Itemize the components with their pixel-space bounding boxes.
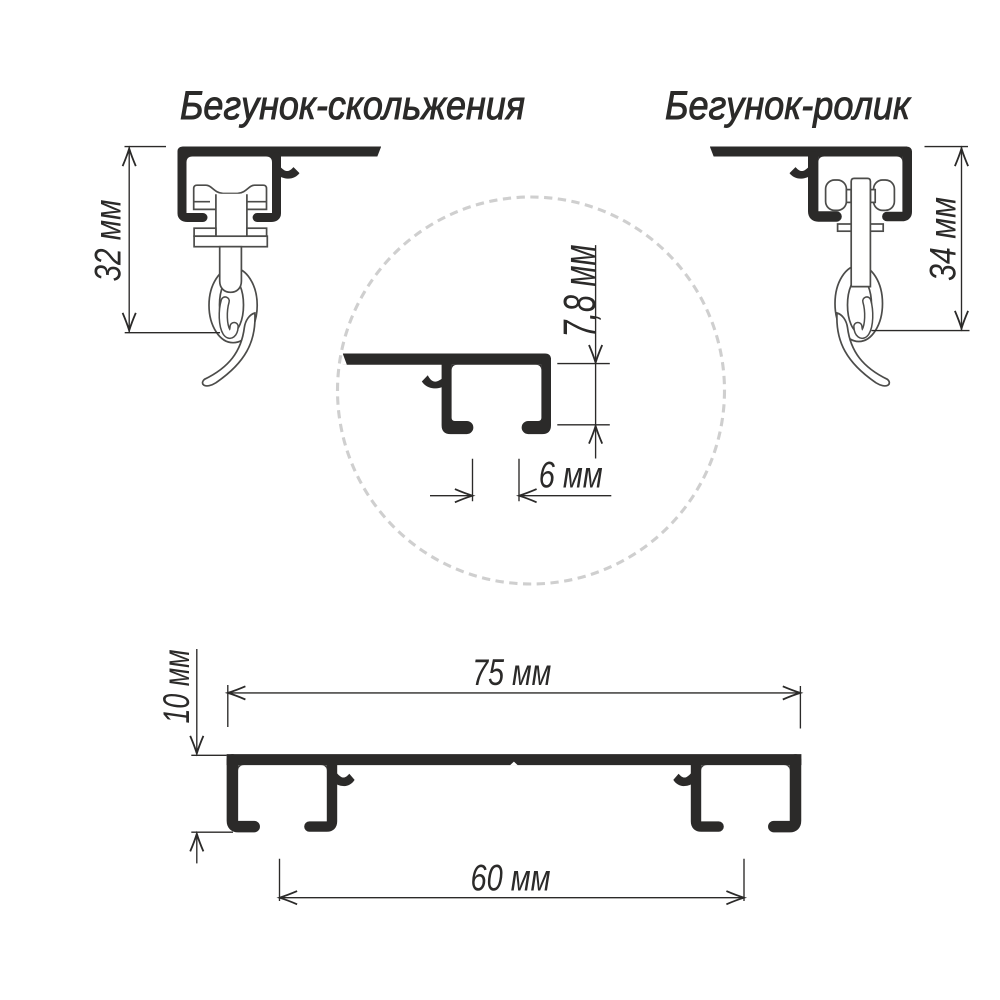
svg-text:7,8 мм: 7,8 мм [554,245,605,338]
svg-text:Бегунок-скольжения: Бегунок-скольжения [180,84,525,128]
svg-text:60 мм: 60 мм [471,858,551,899]
svg-text:75 мм: 75 мм [472,652,551,693]
svg-text:6 мм: 6 мм [539,455,603,496]
svg-text:34 мм: 34 мм [923,197,964,281]
svg-text:10 мм: 10 мм [156,650,197,724]
svg-text:Бегунок-ролик: Бегунок-ролик [665,84,912,128]
svg-text:32 мм: 32 мм [88,200,129,282]
